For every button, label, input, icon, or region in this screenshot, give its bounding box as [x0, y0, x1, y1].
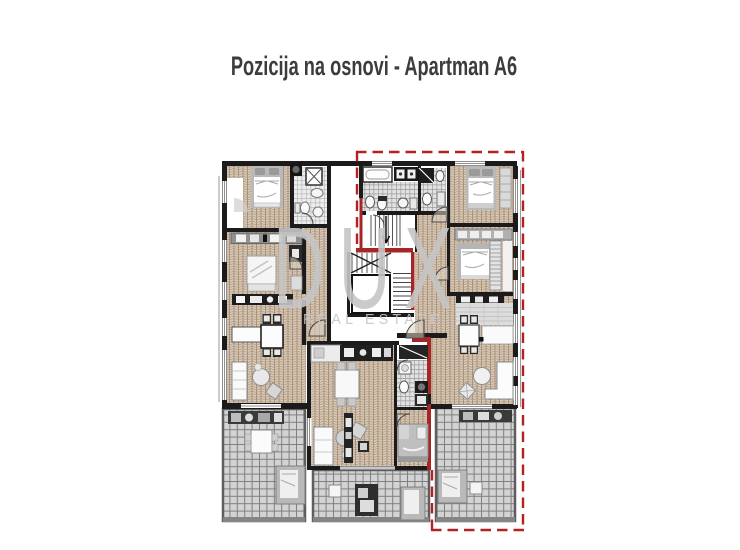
svg-text:REAL ESTATE: REAL ESTATE — [303, 312, 444, 328]
